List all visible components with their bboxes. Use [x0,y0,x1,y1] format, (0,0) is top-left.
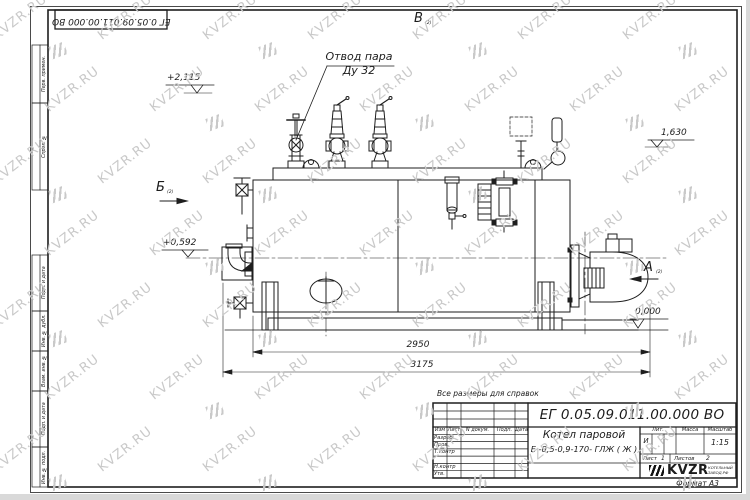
strip-label-inv-podl: Инв. № подл. [40,447,49,487]
kvzr-logo-mark [649,465,664,476]
scale-value: 1:15 [704,439,736,448]
col-izm: Изм [433,428,447,434]
kvzr-logo-sub2: ЗАВОД.РФ [708,471,728,475]
sig-tkontr: Т.контр [434,450,455,456]
view-label-a-ref: (2) [656,271,662,276]
scale-header: Масштаб [704,428,736,434]
col-podp: Подп. [494,428,515,434]
strip-label-perv-primen: Перв. примен. [40,45,49,103]
view-label-b: Б [156,181,165,195]
mass-header: Масса [676,428,704,434]
elevation-right: 1,630 [661,129,687,139]
dimension-2950: 2950 [388,341,448,351]
sheets-num: 2 [706,456,710,463]
strip-label-podp-data-1: Подп. и дата [40,255,49,311]
callout-steam-line1: Отвод пара [299,51,419,63]
col-list: Лист [447,428,461,434]
corner-stamp: ЕГ 0.05.09.011.00.000 ВО [55,10,167,29]
sig-prov: Пров. [434,443,449,449]
sheet-label: Лист [643,456,657,462]
view-label-a: А [644,261,653,275]
strip-label-vzam-inv: Взам. инв. № [40,351,49,391]
dimension-3175: 3175 [392,361,452,371]
elevation-zero: 0,000 [635,308,661,318]
sig-razrab: Разраб. [434,436,454,442]
sig-utv: Утв. [434,472,445,478]
lit-header: Лит. [640,428,676,434]
strip-label-inv-dubl: Инв. № дубл. [40,311,49,351]
strip-label-sprav-no: Справ. № [40,103,49,190]
corner-stamp-number: ЕГ 0.05.09.011.00.000 ВО [52,15,170,25]
col-data: Дата [515,428,528,434]
strip-label-podp-data-2: Подп. и дата [40,391,49,447]
callout-steam-line2: Ду 32 [299,65,419,77]
sig-nkontr: Н.контр [434,465,456,471]
view-label-v-ref: (2) [425,22,431,27]
elevation-top: +2,115 [167,74,200,84]
view-label-b-ref: (2) [167,191,173,196]
lit-value: И [640,438,652,446]
product-name-line2: Е -0,5-0,9-170- ГЛЖ ( Ж ) [528,445,640,454]
reference-note: Все размеры для справок [437,390,539,398]
doc-number: ЕГ 0.05.09.011.00.000 ВО [528,403,736,427]
format-note: Формат А3 [655,480,740,488]
sheet-num: 1 [661,456,665,463]
product-name-line1: Котел паровой [528,430,640,442]
col-ndokum: N докум. [461,428,494,434]
kvzr-logo-text: KVZR [667,464,709,478]
view-label-v: В [414,12,423,26]
elevation-left: +0,592 [163,239,196,249]
sheets-label: Листов [674,456,695,462]
